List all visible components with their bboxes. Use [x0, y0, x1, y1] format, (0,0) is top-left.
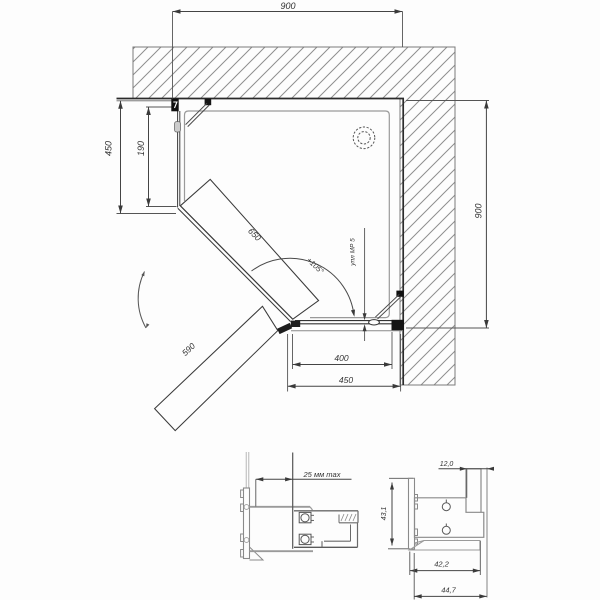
svg-text:44,7: 44,7 — [441, 586, 456, 595]
svg-text:450: 450 — [104, 141, 114, 156]
svg-text:450: 450 — [339, 375, 353, 385]
svg-text:упл МР 5: упл МР 5 — [350, 238, 357, 267]
svg-text:900: 900 — [280, 1, 295, 11]
svg-text:42,2: 42,2 — [434, 560, 449, 569]
svg-text:43,1: 43,1 — [381, 507, 388, 521]
svg-text:12,0: 12,0 — [440, 461, 454, 468]
svg-text:190: 190 — [136, 141, 146, 156]
svg-text:900: 900 — [474, 203, 484, 218]
svg-text:25 мм max: 25 мм max — [303, 470, 341, 479]
svg-text:400: 400 — [334, 353, 348, 363]
